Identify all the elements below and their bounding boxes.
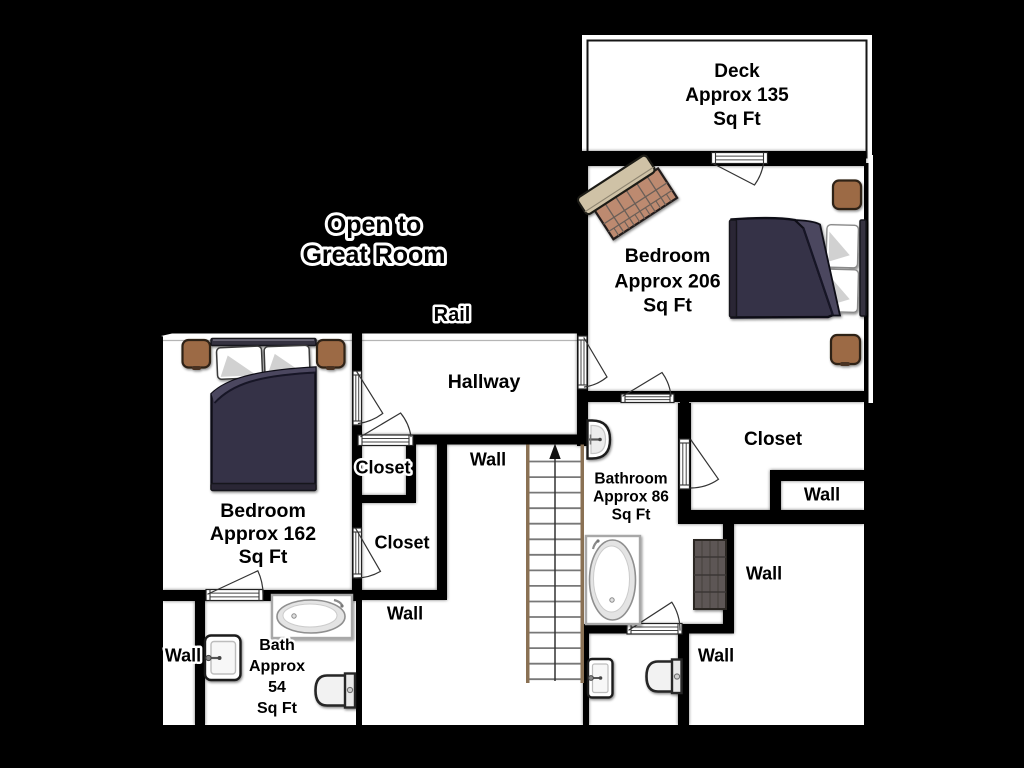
svg-text:Sq Ft: Sq Ft (612, 507, 651, 524)
svg-text:Sq Ft: Sq Ft (257, 700, 298, 717)
svg-text:Wall: Wall (698, 646, 734, 666)
svg-text:Hallway: Hallway (448, 371, 521, 393)
svg-text:Approx: Approx (249, 658, 305, 675)
svg-text:Wall: Wall (746, 564, 782, 584)
svg-text:Wall: Wall (804, 485, 840, 505)
svg-text:Wall: Wall (470, 450, 506, 470)
svg-text:Wall: Wall (165, 646, 201, 666)
svg-text:Approx 162: Approx 162 (210, 523, 316, 545)
svg-text:Closet: Closet (744, 429, 803, 450)
svg-text:Open to: Open to (327, 211, 421, 239)
svg-text:Closet: Closet (374, 533, 429, 553)
svg-text:Sq Ft: Sq Ft (713, 109, 761, 130)
svg-text:Bedroom: Bedroom (220, 500, 306, 522)
svg-text:Bedroom: Bedroom (625, 245, 711, 267)
svg-text:Approx 86: Approx 86 (593, 489, 669, 506)
svg-text:Sq Ft: Sq Ft (643, 295, 692, 317)
svg-text:Approx 206: Approx 206 (614, 271, 720, 293)
svg-text:Wall: Wall (387, 604, 423, 624)
svg-text:Closet: Closet (355, 458, 410, 478)
svg-text:Deck: Deck (714, 61, 760, 82)
svg-text:Approx 135: Approx 135 (685, 85, 789, 106)
svg-text:Bathroom: Bathroom (594, 471, 667, 488)
svg-text:Sq Ft: Sq Ft (239, 546, 288, 568)
svg-text:Bath: Bath (259, 637, 295, 654)
svg-text:54: 54 (268, 679, 286, 696)
svg-text:Rail: Rail (434, 304, 471, 326)
svg-text:Great Room: Great Room (302, 241, 445, 269)
